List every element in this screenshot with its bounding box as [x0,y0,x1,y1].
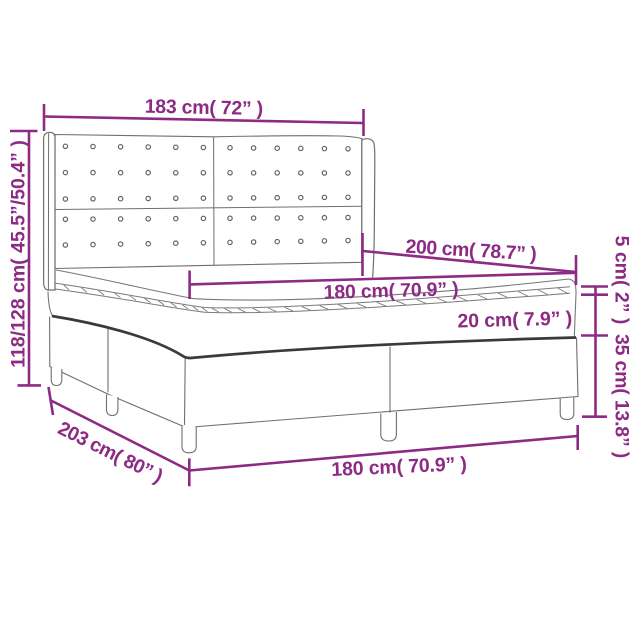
svg-text:35 cm( 13.8” ): 35 cm( 13.8” ) [610,334,632,458]
svg-text:118/128 cm( 45.5”/50.4” ): 118/128 cm( 45.5”/50.4” ) [7,140,29,368]
svg-text:5 cm( 2” ): 5 cm( 2” ) [610,236,632,325]
svg-text:183 cm( 72” ): 183 cm( 72” ) [144,96,263,120]
svg-text:180 cm( 70.9” ): 180 cm( 70.9” ) [323,278,458,304]
svg-text:20 cm( 7.9” ): 20 cm( 7.9” ) [457,308,572,333]
